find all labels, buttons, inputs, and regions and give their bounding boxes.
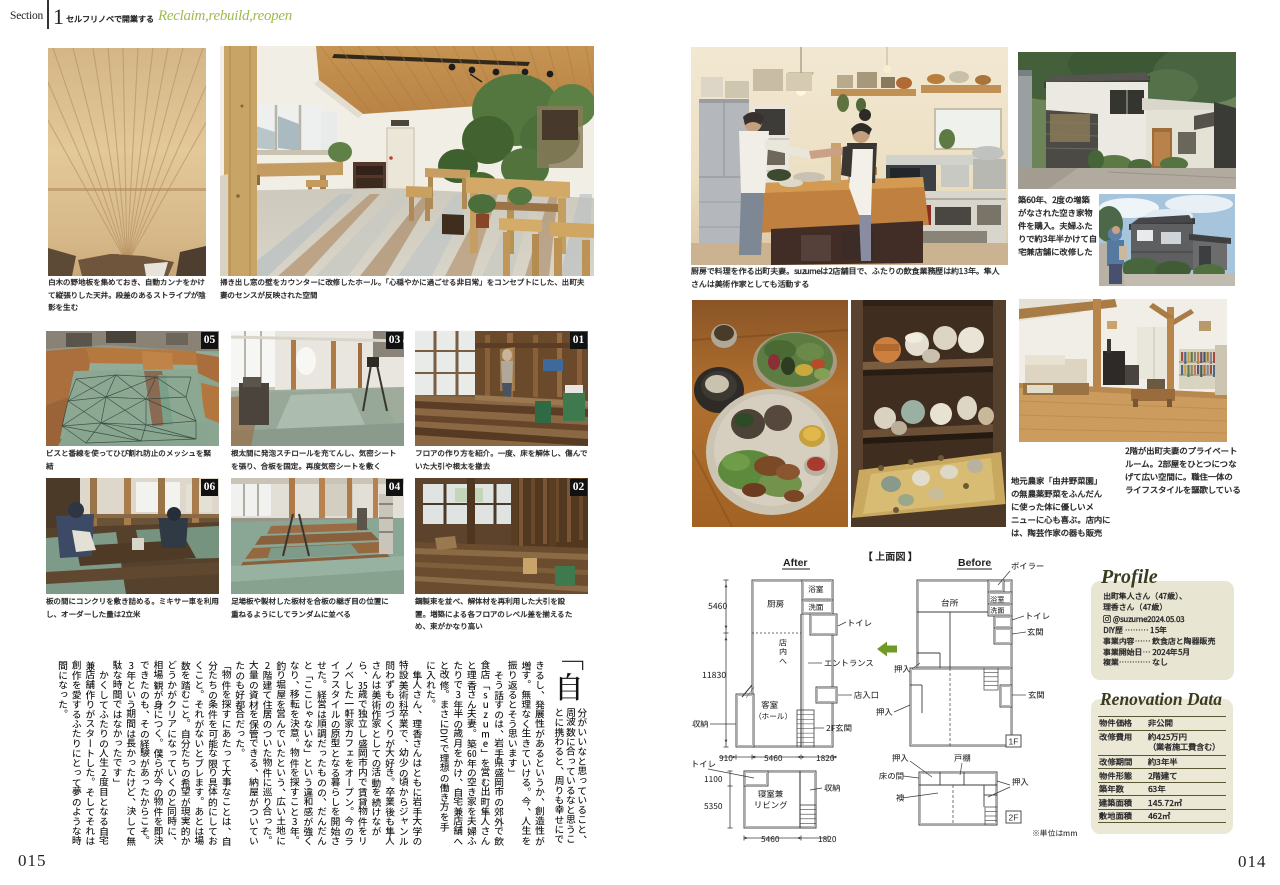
- svg-text:エントランス: エントランス: [824, 657, 874, 669]
- svg-text:戸棚: 戸棚: [954, 752, 971, 764]
- svg-text:1100: 1100: [704, 773, 723, 785]
- svg-text:5460: 5460: [761, 833, 780, 845]
- svg-text:5350: 5350: [704, 800, 723, 812]
- svg-text:押入: 押入: [1012, 776, 1029, 788]
- svg-text:収納: 収納: [692, 718, 709, 730]
- svg-text:トイレ: トイレ: [1025, 610, 1050, 622]
- svg-text:2F玄関: 2F玄関: [826, 722, 852, 734]
- svg-text:910: 910: [719, 752, 733, 764]
- svg-text:5460: 5460: [764, 752, 783, 764]
- svg-text:収納: 収納: [824, 782, 841, 794]
- svg-text:洗面: 洗面: [990, 606, 1004, 616]
- svg-text:押入: 押入: [894, 663, 911, 675]
- svg-text:トイレ: トイレ: [847, 617, 872, 629]
- svg-text:After: After: [783, 557, 808, 569]
- svg-text:台所: 台所: [941, 597, 958, 609]
- svg-text:床の間: 床の間: [879, 770, 904, 782]
- svg-text:トイレ: トイレ: [691, 758, 716, 770]
- svg-text:5460: 5460: [708, 600, 728, 612]
- svg-text:浴室: 浴室: [990, 595, 1004, 605]
- svg-text:玄関: 玄関: [1027, 626, 1044, 638]
- svg-text:店入口: 店入口: [854, 689, 879, 701]
- svg-text:ボイラー: ボイラー: [1011, 560, 1044, 572]
- svg-text:厨房: 厨房: [767, 598, 785, 610]
- svg-text:1820: 1820: [818, 833, 837, 845]
- svg-text:押入: 押入: [892, 752, 909, 764]
- svg-text:客室: 客室: [761, 699, 778, 711]
- svg-text:洗面: 洗面: [808, 602, 824, 613]
- svg-text:店内へ: 店内へ: [778, 638, 789, 665]
- svg-text:浴室: 浴室: [808, 584, 824, 595]
- svg-text:玄関: 玄関: [1028, 689, 1045, 701]
- svg-text:※単位はmm: ※単位はmm: [1032, 828, 1078, 839]
- svg-text:2F: 2F: [1009, 813, 1019, 823]
- svg-text:リビング: リビング: [754, 799, 788, 811]
- svg-text:（ホール）: （ホール）: [754, 711, 792, 722]
- svg-text:Before: Before: [958, 557, 991, 569]
- svg-text:押入: 押入: [876, 706, 893, 718]
- svg-text:1F: 1F: [1009, 737, 1019, 747]
- svg-text:11830: 11830: [702, 669, 726, 681]
- svg-text:1820: 1820: [816, 752, 835, 764]
